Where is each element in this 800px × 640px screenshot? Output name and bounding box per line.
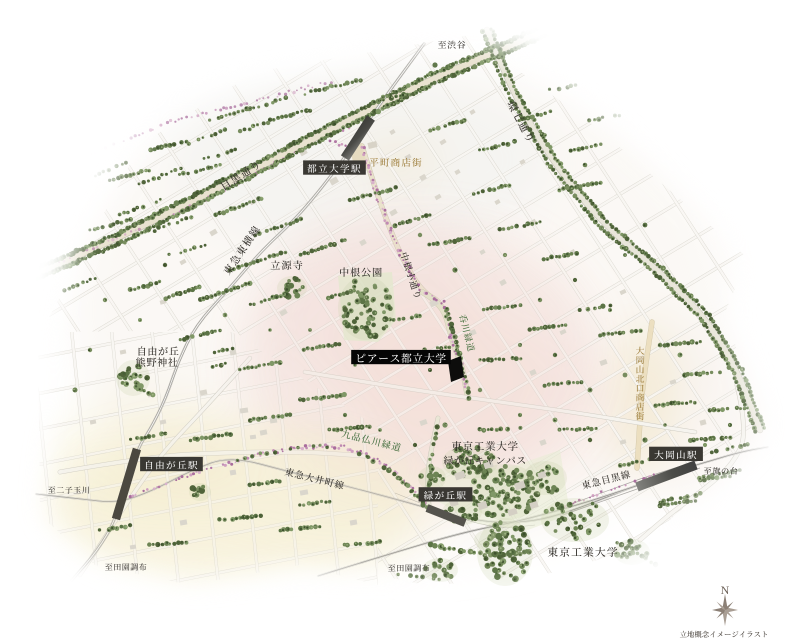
svg-text:N: N [721,583,730,597]
